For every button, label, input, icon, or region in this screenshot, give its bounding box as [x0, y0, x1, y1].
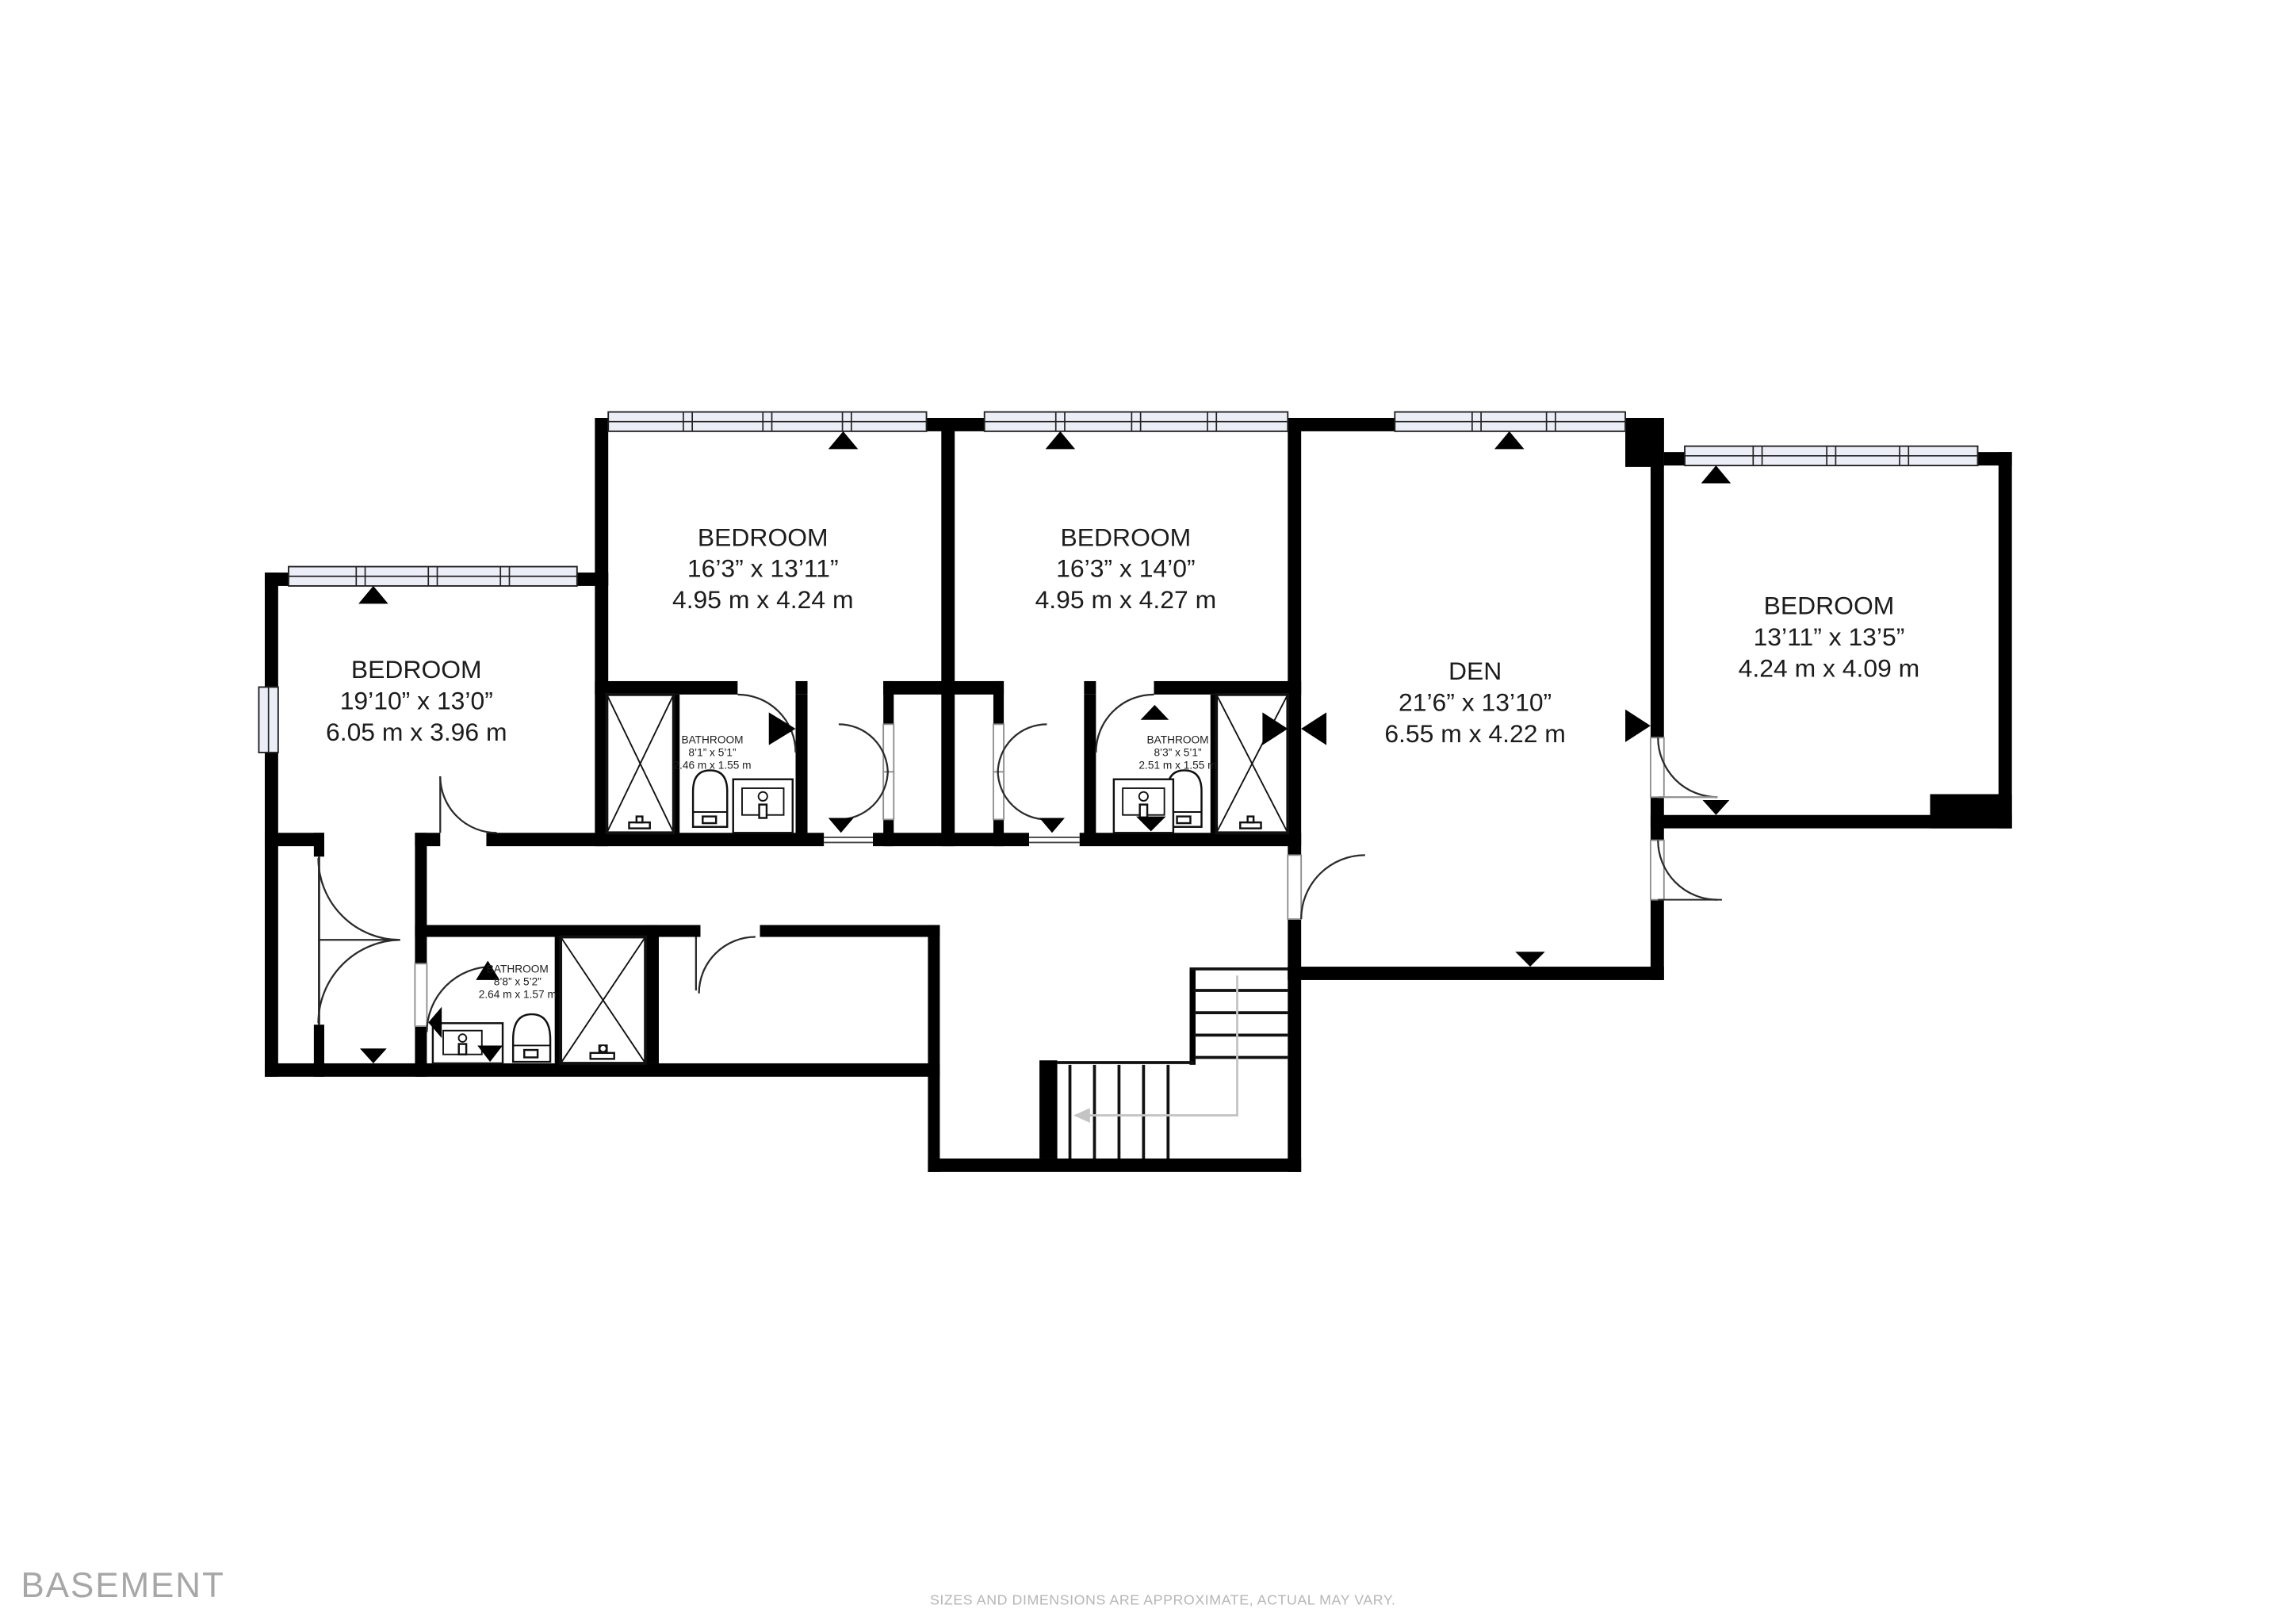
disclaimer-text: SIZES AND DIMENSIONS ARE APPROXIMATE, AC… [930, 1592, 1396, 1608]
bathroom-2-name: BATHROOM [1146, 734, 1208, 746]
window-bedroom-2 [608, 412, 926, 431]
bedroom-2-name: BEDROOM [698, 523, 828, 551]
toilet-icon-bathroom-1 [693, 770, 727, 826]
marker-vestibule-left [828, 818, 854, 833]
bedroom-2-imperial: 16’3” x 13’11” [687, 554, 839, 583]
marker-window-bedroom-2 [828, 431, 859, 450]
marker-den-door [1625, 710, 1651, 742]
shower-icon-bathroom-1 [607, 695, 673, 833]
door-bedroom-1 [440, 776, 496, 833]
marker-vestibule-right [1039, 818, 1065, 833]
bathroom-1-name: BATHROOM [681, 734, 743, 746]
bedroom-1-name: BEDROOM [351, 655, 482, 684]
floor-title: BASEMENT [21, 1566, 224, 1605]
room-label-bathroom-1: BATHROOM 8’1” x 5’1” 2.46 m x 1.55 m [673, 734, 751, 772]
marker-window-bedroom-1 [358, 586, 388, 604]
sink-vanity-icon-bathroom-2 [1114, 779, 1173, 833]
closet-doors-bedroom-3 [993, 724, 1047, 819]
bedroom-3-name: BEDROOM [1061, 523, 1192, 551]
door-storage-room [696, 937, 756, 994]
door-den-to-bedroom-4 [1651, 737, 1717, 797]
stair-direction-arrow [1073, 975, 1237, 1123]
bedroom-4-metric: 4.24 m x 4.09 m [1739, 653, 1920, 682]
den-metric: 6.55 m x 4.22 m [1384, 719, 1566, 748]
floorplan-page: BEDROOM 19’10” x 13’0” 6.05 m x 3.96 m B… [0, 0, 2296, 1624]
bedroom-3-imperial: 16’3” x 14’0” [1056, 554, 1195, 583]
bathroom-3-metric: 2.64 m x 1.57 m [479, 988, 557, 1000]
bathroom-1-imperial: 8’1” x 5’1” [688, 747, 737, 759]
closet-double-doors-bedroom-1 [318, 856, 400, 1025]
marker-wall-den-right [1301, 712, 1326, 745]
bedroom-2-metric: 4.95 m x 4.24 m [672, 585, 854, 614]
bedroom-3-metric: 4.95 m x 4.27 m [1035, 585, 1217, 614]
stairs [1058, 969, 1288, 1159]
door-den-exterior [1651, 841, 1722, 900]
marker-den-bottom [1515, 952, 1545, 967]
floorplan-canvas: BEDROOM 19’10” x 13’0” 6.05 m x 3.96 m B… [0, 0, 2296, 1624]
window-bedroom-1-side [258, 687, 277, 753]
room-label-den: DEN 21’6” x 13’10” 6.55 m x 4.22 m [1384, 657, 1566, 748]
marker-bedroom-4-entry [1703, 800, 1730, 815]
bedroom-4-imperial: 13’11” x 13’5” [1754, 622, 1905, 651]
room-label-bathroom-2: BATHROOM 8’3” x 5’1” 2.51 m x 1.55 m [1138, 734, 1216, 772]
room-label-bedroom-2: BEDROOM 16’3” x 13’11” 4.95 m x 4.24 m [672, 523, 854, 614]
marker-wall-bathroom-2-left [1262, 712, 1288, 745]
toilet-icon-bathroom-3 [513, 1014, 550, 1062]
bathroom-3-name: BATHROOM [487, 963, 549, 975]
window-bedroom-1 [289, 567, 577, 586]
sink-vanity-icon-bathroom-1 [733, 779, 793, 833]
closet-doors-bedroom-2 [839, 724, 894, 819]
door-den-from-hall [1288, 855, 1365, 919]
bathroom-1-metric: 2.46 m x 1.55 m [673, 760, 751, 772]
marker-window-bedroom-4 [1701, 465, 1732, 484]
window-bedroom-4 [1685, 446, 1977, 465]
marker-window-den [1494, 431, 1525, 450]
marker-door-bathroom-1 [769, 712, 796, 745]
bedroom-4-name: BEDROOM [1764, 592, 1895, 620]
den-name: DEN [1448, 657, 1502, 685]
window-den [1395, 412, 1625, 431]
shower-icon-bathroom-3 [561, 937, 645, 1063]
shower-icon-bathroom-2 [1216, 695, 1288, 833]
bathroom-2-imperial: 8’3” x 5’1” [1154, 747, 1202, 759]
marker-door-bathroom-2 [1141, 705, 1169, 720]
room-label-bathroom-3: BATHROOM 8’8” x 5’2” 2.64 m x 1.57 m [479, 963, 557, 1001]
bathroom-2-metric: 2.51 m x 1.55 m [1138, 760, 1216, 772]
room-label-bedroom-1: BEDROOM 19’10” x 13’0” 6.05 m x 3.96 m [326, 655, 507, 746]
bedroom-1-imperial: 19’10” x 13’0” [340, 687, 493, 715]
room-label-bedroom-3: BEDROOM 16’3” x 14’0” 4.95 m x 4.27 m [1035, 523, 1217, 614]
window-bedroom-3 [985, 412, 1288, 431]
marker-window-bedroom-3 [1046, 431, 1076, 450]
den-imperial: 21’6” x 13’10” [1399, 688, 1552, 716]
bedroom-1-metric: 6.05 m x 3.96 m [326, 718, 507, 746]
room-label-bedroom-4: BEDROOM 13’11” x 13’5” 4.24 m x 4.09 m [1739, 592, 1920, 683]
marker-alcove [360, 1048, 387, 1063]
door-bathroom-2 [1096, 695, 1154, 753]
bathroom-3-imperial: 8’8” x 5’2” [494, 975, 542, 987]
